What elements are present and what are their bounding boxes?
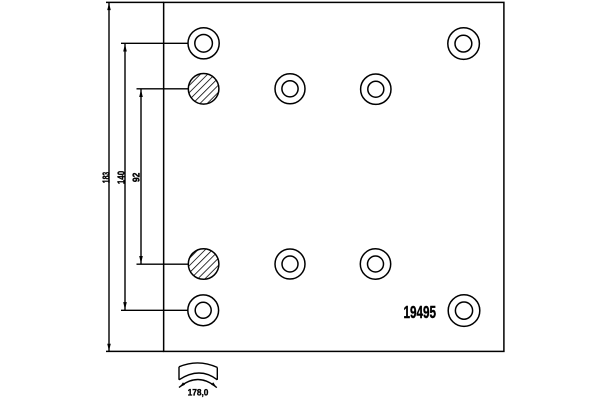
- svg-text:92: 92: [130, 172, 142, 182]
- svg-text:140: 140: [116, 171, 128, 184]
- svg-text:178,0: 178,0: [188, 388, 209, 398]
- svg-text:183: 183: [101, 172, 113, 183]
- svg-text:19495: 19495: [404, 302, 437, 322]
